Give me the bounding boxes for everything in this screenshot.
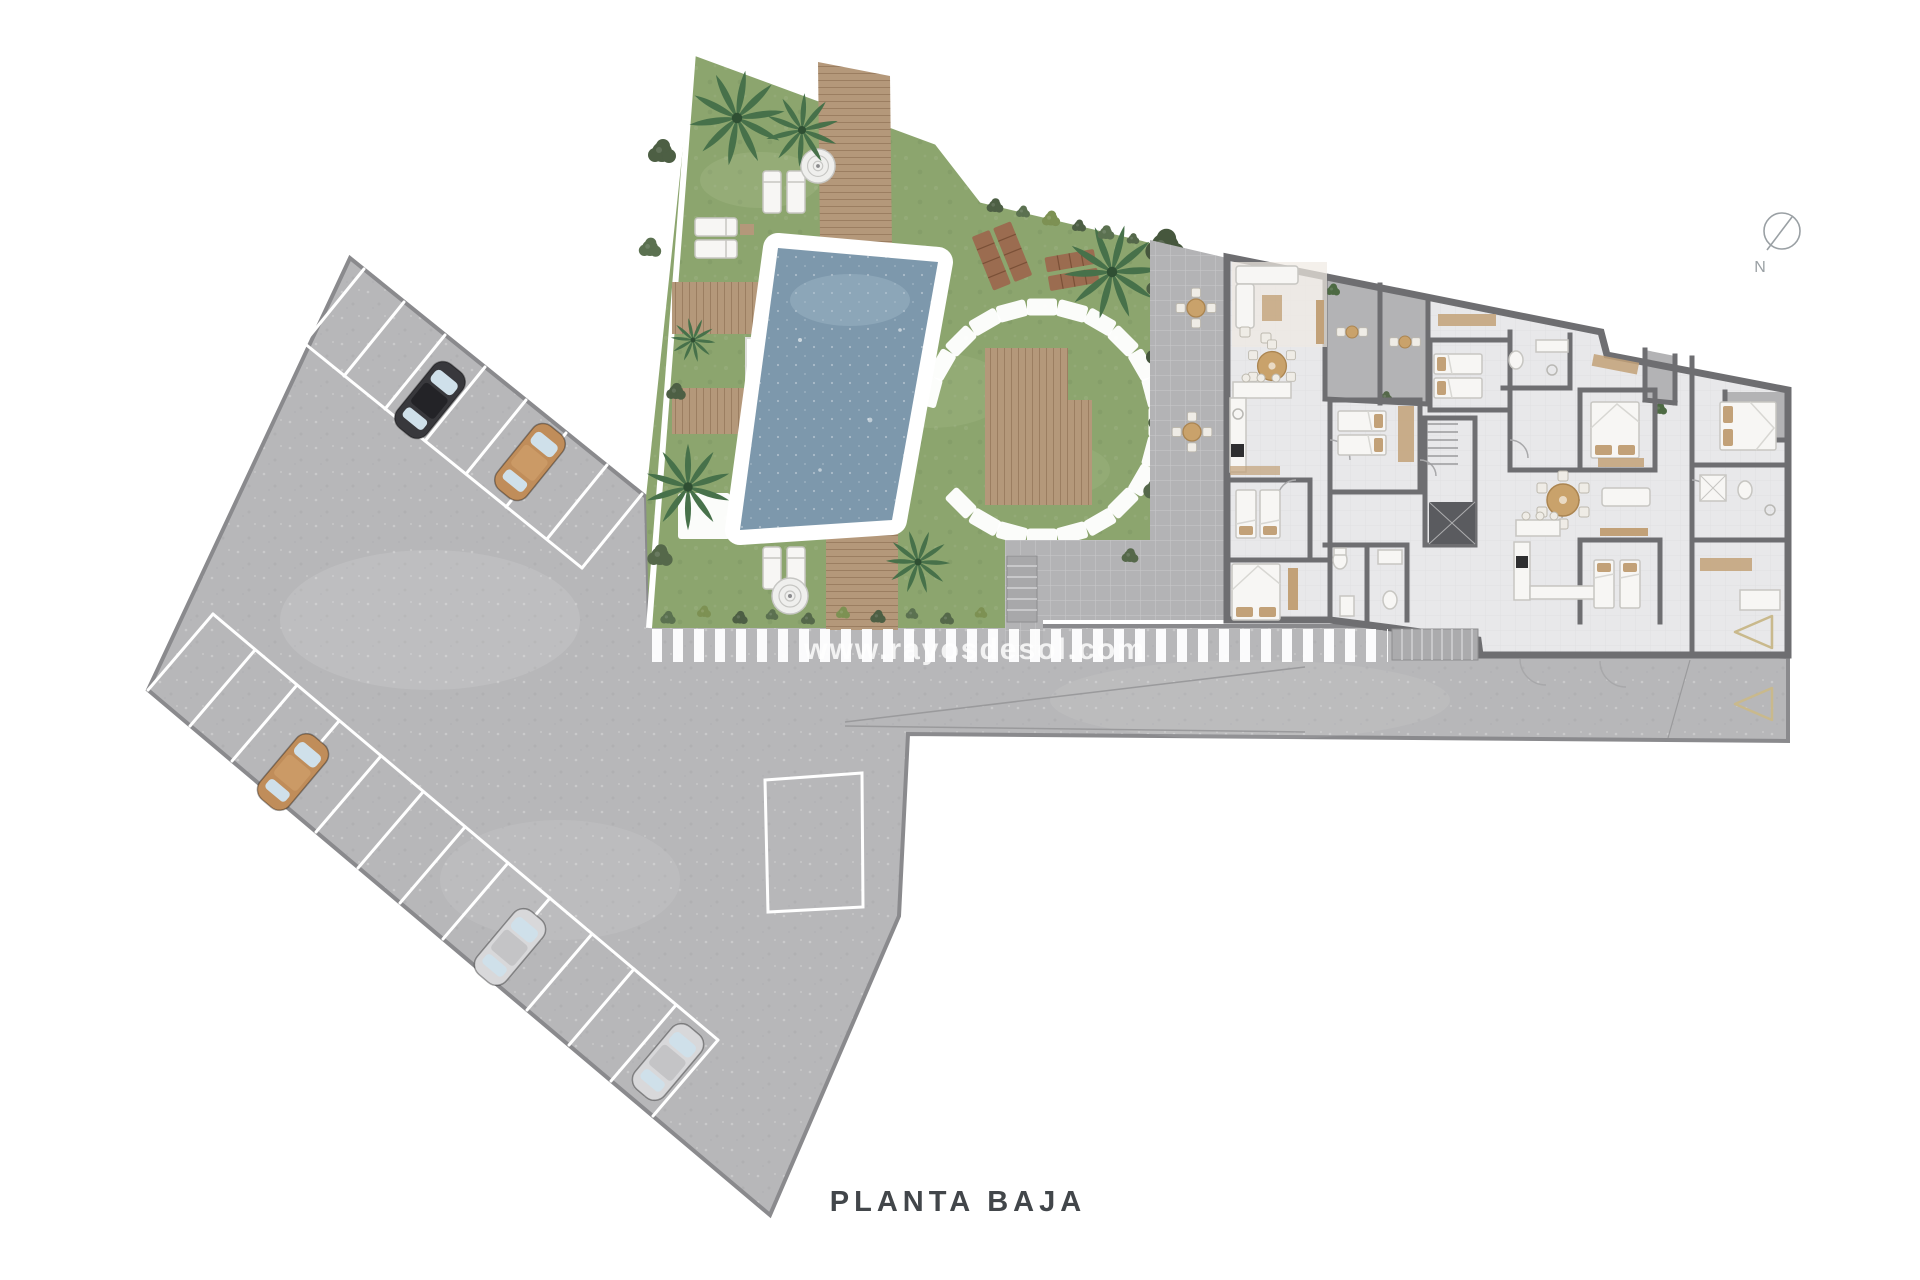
compass-needle-icon (1767, 217, 1792, 250)
entrance-steps (1392, 629, 1478, 660)
plan-title: PLANTA BAJA (830, 1186, 1086, 1218)
swimming-pool (740, 248, 938, 530)
site-plan-page: www.rayosdesol.com N PLANTA BAJA (0, 0, 1920, 1280)
exterior-stairs (1007, 556, 1037, 622)
floor-plan-image: www.rayosdesol.com N PLANTA BAJA (0, 0, 1920, 1280)
compass-label: N (1754, 259, 1766, 276)
north-compass: N (1754, 213, 1800, 276)
building-floorplan (1227, 257, 1788, 660)
watermark: www.rayosdesol.com (803, 633, 1146, 666)
